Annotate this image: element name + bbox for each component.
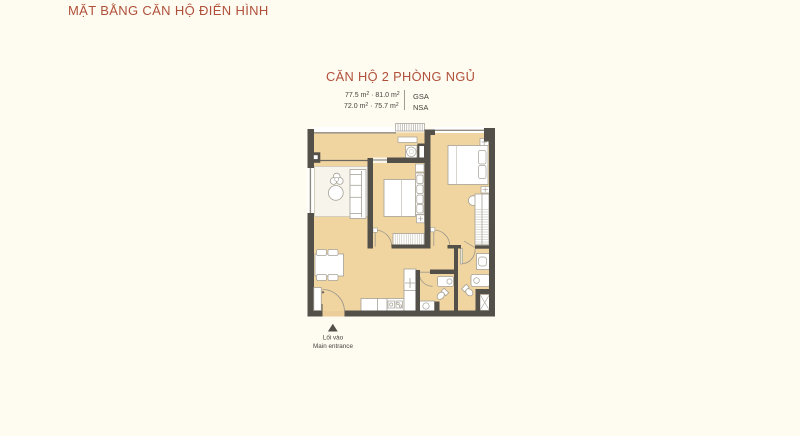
svg-text:Lối vào: Lối vào	[323, 333, 344, 342]
svg-text:Main entrance: Main entrance	[313, 343, 353, 350]
